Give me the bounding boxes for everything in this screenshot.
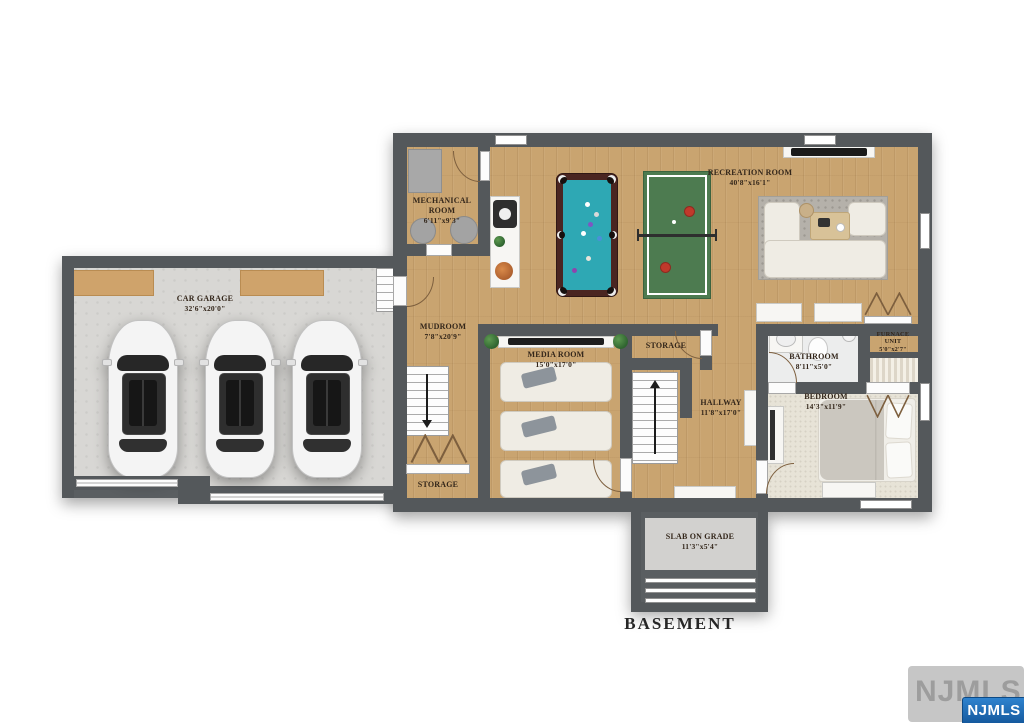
car-rear-window xyxy=(303,439,351,452)
door-opening xyxy=(393,276,407,306)
bar-sink-basin xyxy=(499,208,511,220)
ping-pong-net xyxy=(637,234,717,237)
arrow-head-down xyxy=(422,420,432,428)
window xyxy=(804,135,836,145)
exterior-step xyxy=(645,578,756,583)
bathroom-label: BATHROOM 8'11"x5'0" xyxy=(782,352,846,371)
media-sofa xyxy=(500,411,612,451)
ping-pong-ball xyxy=(672,220,676,224)
garage-workbench xyxy=(240,270,324,296)
furnace-unit-label: FURNACE UNIT 5'0"x2'7" xyxy=(868,331,918,353)
wall-top xyxy=(393,133,932,147)
coffee-table-decor xyxy=(818,218,830,227)
slab-on-grade-label: SLAB ON GRADE 11'3"x5'4" xyxy=(652,532,748,551)
car-rear-window xyxy=(119,439,167,452)
car-mirror xyxy=(358,359,368,366)
door-opening xyxy=(480,151,490,181)
car-windshield xyxy=(301,355,353,371)
recreation-room-label: RECREATION ROOM 40'8"x16'1" xyxy=(700,168,800,187)
wall-furnace-closet xyxy=(870,352,918,358)
pool-pocket xyxy=(558,175,567,184)
tv xyxy=(791,148,867,156)
ping-pong-paddle xyxy=(684,206,695,217)
car-sunroof xyxy=(226,380,254,426)
ping-pong-net-post xyxy=(715,229,717,241)
cabinet xyxy=(814,303,862,322)
car-garage-label: CAR GARAGE 32'6"x20'0" xyxy=(150,294,260,313)
mechanical-room-label: MECHANICAL ROOM 6'11"x9'3" xyxy=(406,196,478,225)
wall-media-left xyxy=(478,324,490,510)
car-mirror xyxy=(271,359,281,366)
watermark-blue-badge: NJMLS xyxy=(962,697,1024,723)
arrow-head-up xyxy=(650,380,660,388)
side-table xyxy=(799,203,814,218)
window xyxy=(860,500,912,509)
plant xyxy=(494,236,505,247)
window xyxy=(920,213,930,249)
media-tv xyxy=(508,338,604,345)
wall-bottom xyxy=(393,498,932,512)
mechanical-equipment xyxy=(408,149,442,193)
garage-wall-top xyxy=(62,256,405,268)
sectional-sofa xyxy=(764,240,886,278)
garage-wall-left xyxy=(62,256,74,498)
pool-pocket xyxy=(609,231,617,239)
car-rear-window xyxy=(216,439,264,452)
door-opening xyxy=(426,244,452,256)
pool-ball xyxy=(586,256,591,261)
coffee-table-decor xyxy=(836,223,845,232)
door-opening xyxy=(866,382,910,394)
media-room-label: MEDIA ROOM 15'0"x17'0" xyxy=(510,350,602,369)
car-windshield xyxy=(214,355,266,371)
car-mirror xyxy=(102,359,112,366)
bedroom-label: BEDROOM 14'3"x11'9" xyxy=(788,392,864,411)
pool-table-felt xyxy=(563,180,611,290)
car-roof xyxy=(306,373,350,435)
pool-ball xyxy=(585,202,590,207)
storage-label: STORAGE xyxy=(406,480,470,490)
car-sunroof xyxy=(129,380,157,426)
window xyxy=(495,135,527,145)
pool-ball xyxy=(588,222,593,227)
window xyxy=(920,383,930,421)
car-roof xyxy=(122,373,166,435)
garage-door-opening xyxy=(210,493,384,501)
closet-double-door xyxy=(410,434,468,464)
wall-right xyxy=(918,133,932,512)
car-sunroof xyxy=(313,380,341,426)
pool-pocket xyxy=(607,287,616,296)
fruit-bowl xyxy=(495,262,513,280)
hallway-label: HALLWAY 11'8"x17'0" xyxy=(686,398,756,417)
basement-floor-plan: CAR GARAGE 32'6"x20'0" MECHANICAL ROOM 6… xyxy=(0,0,1024,723)
stairs-up-arrow xyxy=(654,388,656,454)
door-opening xyxy=(406,464,470,474)
pool-ball xyxy=(581,231,586,236)
bed-pillow xyxy=(885,441,913,478)
car-windshield xyxy=(117,355,169,371)
car-roof xyxy=(219,373,263,435)
car xyxy=(205,320,275,478)
armchair xyxy=(848,202,886,236)
car-mirror xyxy=(174,359,184,366)
pool-pocket xyxy=(558,287,567,296)
bedroom-tv xyxy=(770,410,775,460)
exterior-step xyxy=(645,598,756,603)
ping-pong-paddle xyxy=(660,262,671,273)
ping-pong-net-post xyxy=(637,229,639,241)
pool-pocket xyxy=(607,175,616,184)
car-mirror xyxy=(286,359,296,366)
pool-ball xyxy=(597,236,602,241)
mudroom-label: MUDROOM 7'8"x20'9" xyxy=(408,322,478,341)
garage-workbench xyxy=(70,270,154,296)
pool-pocket xyxy=(557,231,565,239)
stairs-down-arrow xyxy=(426,374,428,420)
njmls-watermark: NJMLS NJMLS xyxy=(908,666,1024,723)
exterior-step xyxy=(645,588,756,593)
slab-wall-left xyxy=(631,512,641,610)
car xyxy=(108,320,178,478)
pool-ball xyxy=(572,268,577,273)
door-opening xyxy=(620,458,632,492)
pool-ball xyxy=(594,212,599,217)
cabinet xyxy=(756,303,802,322)
bedroom-closet-double-door xyxy=(866,394,910,418)
plant xyxy=(613,334,628,349)
storage-label: STORAGE xyxy=(634,341,698,351)
slab-wall-bottom xyxy=(631,602,768,612)
garage-door-opening xyxy=(76,479,178,487)
door-opening xyxy=(864,316,912,324)
furnace-double-door xyxy=(864,292,912,316)
car xyxy=(292,320,362,478)
closet-floor xyxy=(870,358,918,382)
floor-title: BASEMENT xyxy=(590,614,770,634)
nightstand xyxy=(822,482,876,498)
plant xyxy=(484,334,499,349)
car-mirror xyxy=(199,359,209,366)
slab-wall-right xyxy=(758,512,768,610)
